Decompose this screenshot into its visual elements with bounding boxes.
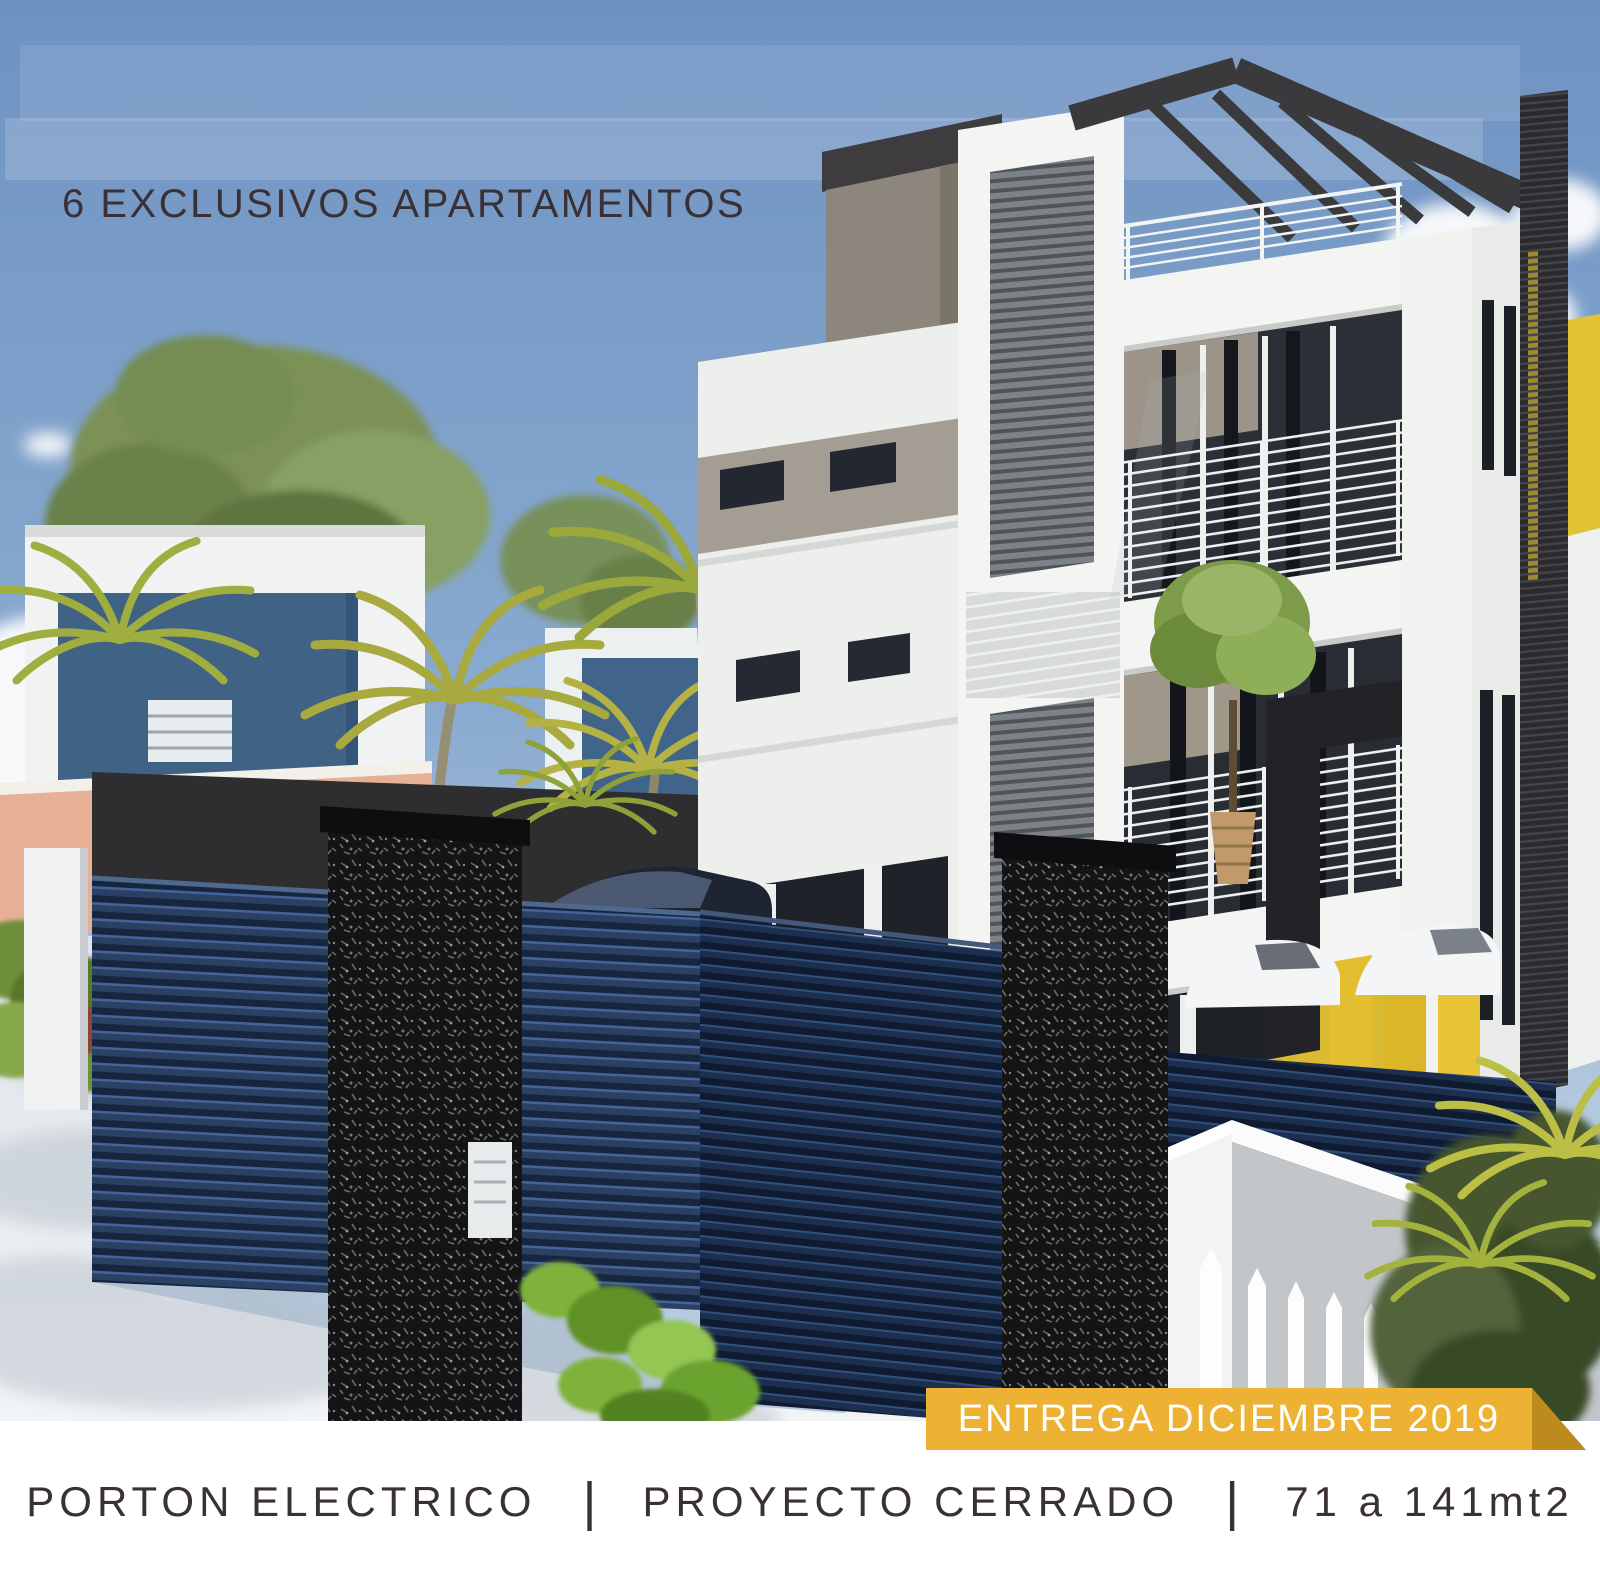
delivery-banner-text: ENTREGA DICIEMBRE 2019 [958,1398,1500,1441]
stone-pillar-center [328,816,522,1421]
feature-separator: | [1225,1472,1239,1532]
features-bar: PORTON ELECTRICO | PROYECTO CERRADO | 71… [0,1462,1600,1542]
headline: 6 EXCLUSIVOS APARTAMENTOS [62,182,746,227]
banner-fold-decoration [1532,1388,1586,1450]
feature-closed-project: PROYECTO CERRADO [643,1478,1180,1526]
gate-keypad-box [468,1142,512,1238]
real-estate-flyer: 6 EXCLUSIVOS APARTAMENTOS ENTREGA DICIEM… [0,0,1600,1587]
delivery-banner: ENTREGA DICIEMBRE 2019 [926,1388,1532,1450]
yellow-wall-upper [1568,314,1600,536]
building-render-photo: 6 EXCLUSIVOS APARTAMENTOS [0,0,1600,1421]
gate-panel-right [700,916,1008,1421]
feature-separator: | [582,1472,596,1532]
feature-electric-gate: PORTON ELECTRICO [26,1478,536,1526]
feature-size-range: 71 a 141mt2 [1285,1478,1574,1526]
stone-pillar-right [1002,842,1168,1421]
